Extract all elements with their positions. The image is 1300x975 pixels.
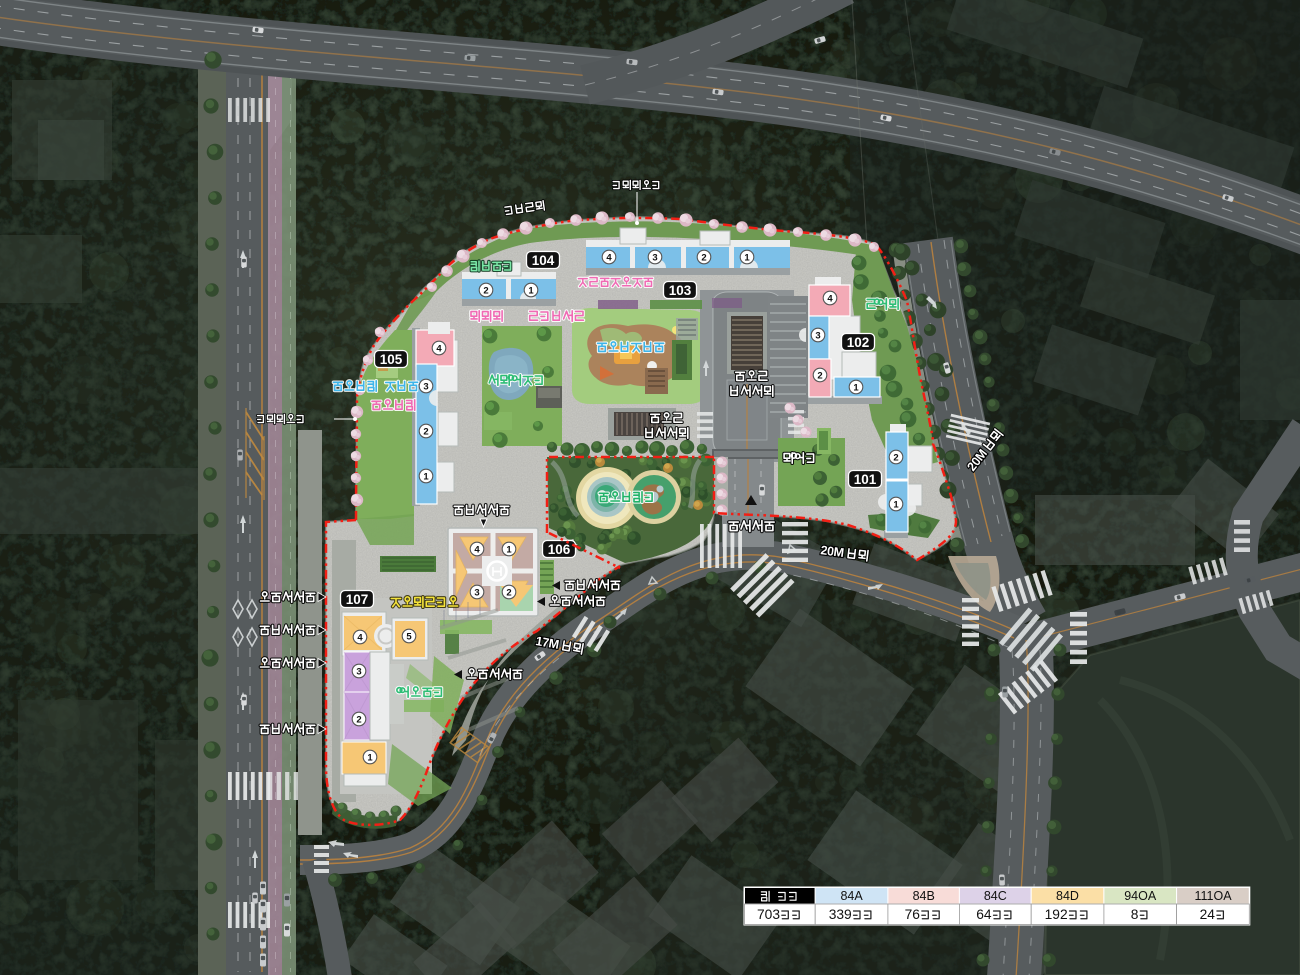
svg-text:2: 2 — [817, 370, 822, 381]
svg-text:1: 1 — [367, 752, 373, 763]
svg-text:3: 3 — [815, 330, 820, 341]
svg-text:M: M — [833, 545, 845, 560]
svg-text:103: 103 — [669, 283, 692, 298]
svg-text:192: 192 — [1045, 907, 1068, 922]
svg-text:5: 5 — [406, 631, 412, 642]
svg-text:1: 1 — [744, 252, 750, 263]
svg-text:8: 8 — [1131, 907, 1139, 922]
svg-text:84D: 84D — [1056, 889, 1079, 903]
svg-text:2: 2 — [423, 426, 428, 437]
svg-text:4: 4 — [474, 544, 480, 555]
svg-text:4: 4 — [436, 343, 442, 354]
svg-text:111OA: 111OA — [1194, 889, 1232, 903]
svg-text:2: 2 — [356, 714, 361, 725]
svg-text:84C: 84C — [984, 889, 1007, 903]
svg-text:84B: 84B — [913, 889, 935, 903]
svg-text:4: 4 — [827, 293, 833, 304]
svg-text:3: 3 — [652, 252, 657, 263]
svg-text:3: 3 — [356, 666, 361, 677]
svg-text:106: 106 — [548, 542, 571, 557]
svg-text:339: 339 — [829, 907, 852, 922]
svg-text:1: 1 — [506, 544, 512, 555]
svg-text:4: 4 — [606, 252, 612, 263]
svg-text:1: 1 — [893, 499, 899, 510]
svg-text:24: 24 — [1200, 907, 1216, 922]
svg-text:2: 2 — [893, 452, 898, 463]
svg-text:102: 102 — [847, 335, 870, 350]
svg-text:2: 2 — [701, 252, 706, 263]
svg-text:107: 107 — [346, 592, 369, 607]
svg-text:703: 703 — [757, 907, 780, 922]
svg-text:1: 1 — [528, 285, 534, 296]
svg-text:3: 3 — [474, 587, 479, 598]
svg-text:3: 3 — [423, 381, 428, 392]
svg-text:94OA: 94OA — [1124, 889, 1157, 903]
svg-text:84A: 84A — [840, 889, 863, 903]
svg-text:64: 64 — [976, 907, 992, 922]
svg-text:105: 105 — [380, 352, 403, 367]
svg-text:4: 4 — [357, 632, 363, 643]
svg-text:1: 1 — [423, 471, 429, 482]
svg-text:1: 1 — [853, 382, 859, 393]
svg-text:2: 2 — [506, 587, 511, 598]
svg-text:101: 101 — [854, 472, 877, 487]
svg-text:76: 76 — [905, 907, 921, 922]
svg-text:104: 104 — [532, 253, 555, 268]
svg-text:2: 2 — [483, 285, 488, 296]
